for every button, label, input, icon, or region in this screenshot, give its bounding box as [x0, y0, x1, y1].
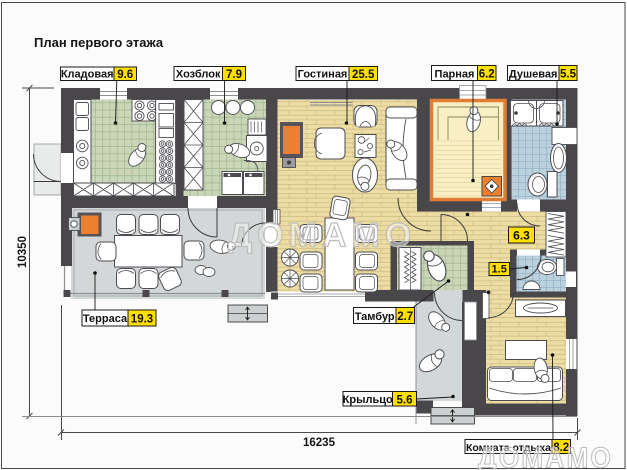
svg-text:19.3: 19.3	[131, 313, 153, 325]
svg-text:6.2: 6.2	[479, 69, 495, 81]
svg-text:Хозблок: Хозблок	[176, 69, 221, 81]
svg-text:ДОМАМО: ДОМАМО	[478, 441, 613, 470]
svg-text:Кладовая: Кладовая	[61, 69, 114, 81]
svg-text:Тамбур: Тамбур	[355, 311, 395, 323]
svg-text:10350: 10350	[17, 236, 29, 268]
svg-text:16235: 16235	[303, 437, 336, 449]
svg-text:25.5: 25.5	[352, 69, 375, 81]
svg-text:Крыльцо: Крыльцо	[343, 394, 393, 406]
svg-text:Гостиная: Гостиная	[298, 69, 348, 81]
svg-text:9.6: 9.6	[117, 69, 133, 81]
svg-text:Терраса: Терраса	[83, 313, 128, 325]
svg-text:5.5: 5.5	[560, 69, 577, 81]
svg-text:Парная: Парная	[435, 68, 475, 80]
svg-text:Душевая: Душевая	[509, 68, 558, 80]
svg-text:1.5: 1.5	[492, 264, 507, 276]
svg-text:План первого этажа: План первого этажа	[34, 35, 164, 50]
svg-text:7.9: 7.9	[226, 69, 242, 81]
svg-text:2.7: 2.7	[397, 311, 413, 323]
svg-text:5.6: 5.6	[397, 394, 413, 406]
svg-text:ДОМАМО: ДОМАМО	[228, 217, 416, 255]
svg-text:6.3: 6.3	[513, 229, 530, 243]
